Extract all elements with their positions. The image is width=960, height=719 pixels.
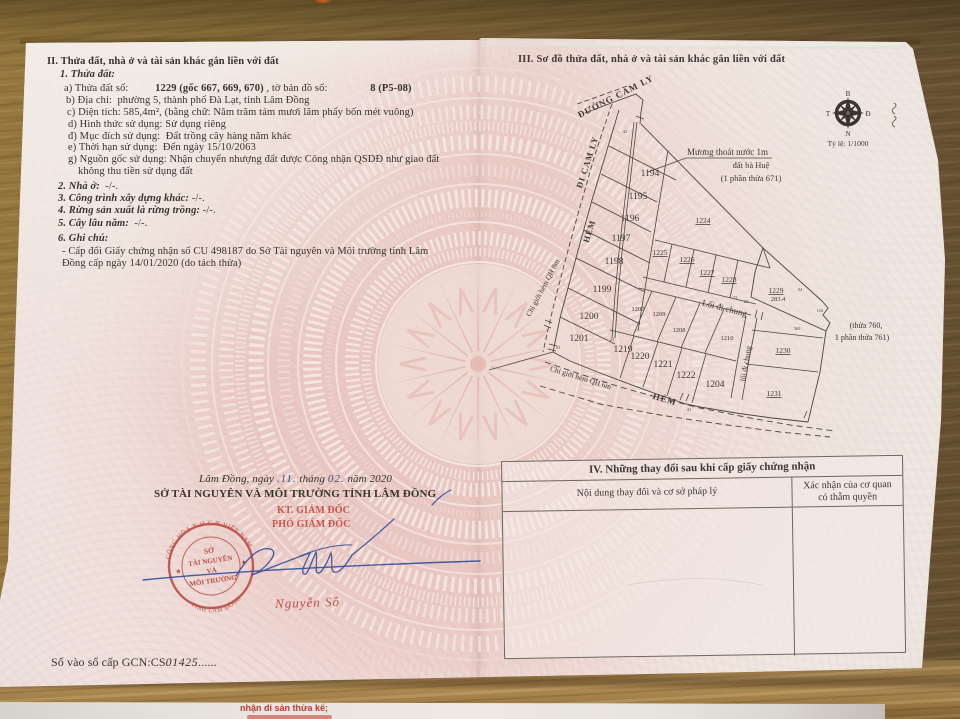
svg-text:1220: 1220 <box>631 352 650 362</box>
svg-text:1199: 1199 <box>593 285 612 295</box>
svg-text:1200: 1200 <box>580 312 599 322</box>
svg-text:Mương thoát nước 1m: Mương thoát nước 1m <box>687 147 768 157</box>
svg-text:1198: 1198 <box>605 257 624 267</box>
svg-text:22: 22 <box>744 299 749 304</box>
svg-text:369: 369 <box>794 326 802 331</box>
svg-text:43: 43 <box>687 407 692 412</box>
svg-text:1207: 1207 <box>632 306 646 313</box>
svg-text:1209: 1209 <box>653 311 666 318</box>
svg-text:1224: 1224 <box>696 216 711 225</box>
svg-text:B: B <box>846 90 851 98</box>
svg-text:1197: 1197 <box>612 234 631 244</box>
svg-text:42: 42 <box>623 129 628 134</box>
svg-text:1230: 1230 <box>776 346 791 355</box>
svg-text:1226: 1226 <box>680 255 695 264</box>
svg-text:ĐƯỜNG CAM LY: ĐƯỜNG CAM LY <box>576 73 655 120</box>
svg-text:23: 23 <box>733 295 738 300</box>
svg-text:1227: 1227 <box>700 268 715 277</box>
svg-text:1195: 1195 <box>629 192 648 202</box>
svg-text:1228: 1228 <box>722 275 737 284</box>
svg-text:HẺM: HẺM <box>581 218 598 243</box>
svg-text:1229: 1229 <box>769 286 784 295</box>
svg-text:1225: 1225 <box>653 248 668 257</box>
svg-text:1210: 1210 <box>721 335 734 342</box>
svg-text:1 phần thửa 761): 1 phần thửa 761) <box>835 333 890 342</box>
svg-text:1196: 1196 <box>621 214 640 224</box>
svg-text:Đ: Đ <box>865 110 870 118</box>
svg-text:116: 116 <box>817 308 824 313</box>
svg-text:1201: 1201 <box>570 334 589 344</box>
svg-text:HẺM: HẺM <box>652 391 678 407</box>
svg-text:23: 23 <box>556 345 561 350</box>
svg-text:lối đi chung: lối đi chung <box>738 345 753 382</box>
svg-text:Tỷ lệ: 1/1000: Tỷ lệ: 1/1000 <box>828 139 869 148</box>
svg-text:283.4: 283.4 <box>771 296 786 303</box>
svg-text:1221: 1221 <box>654 360 673 370</box>
svg-text:(thửa 760,: (thửa 760, <box>850 321 883 330</box>
svg-text:(1 phần thửa 671): (1 phần thửa 671) <box>721 173 782 183</box>
svg-text:T: T <box>826 110 831 118</box>
svg-text:đất bà Huệ: đất bà Huệ <box>733 160 770 170</box>
svg-text:Chỉ giới hẻm QH 8m: Chỉ giới hẻm QH 8m <box>524 258 562 318</box>
svg-text:1204: 1204 <box>706 380 725 390</box>
svg-text:1208: 1208 <box>673 327 686 334</box>
svg-text:1231: 1231 <box>767 389 782 398</box>
svg-text:04: 04 <box>798 287 803 292</box>
svg-text:N: N <box>845 130 850 138</box>
svg-text:1194: 1194 <box>641 169 660 179</box>
svg-text:23: 23 <box>610 337 615 342</box>
svg-text:Chỉ giới hẻm QH 6m: Chỉ giới hẻm QH 6m <box>549 364 613 391</box>
svg-text:1222: 1222 <box>677 371 696 381</box>
